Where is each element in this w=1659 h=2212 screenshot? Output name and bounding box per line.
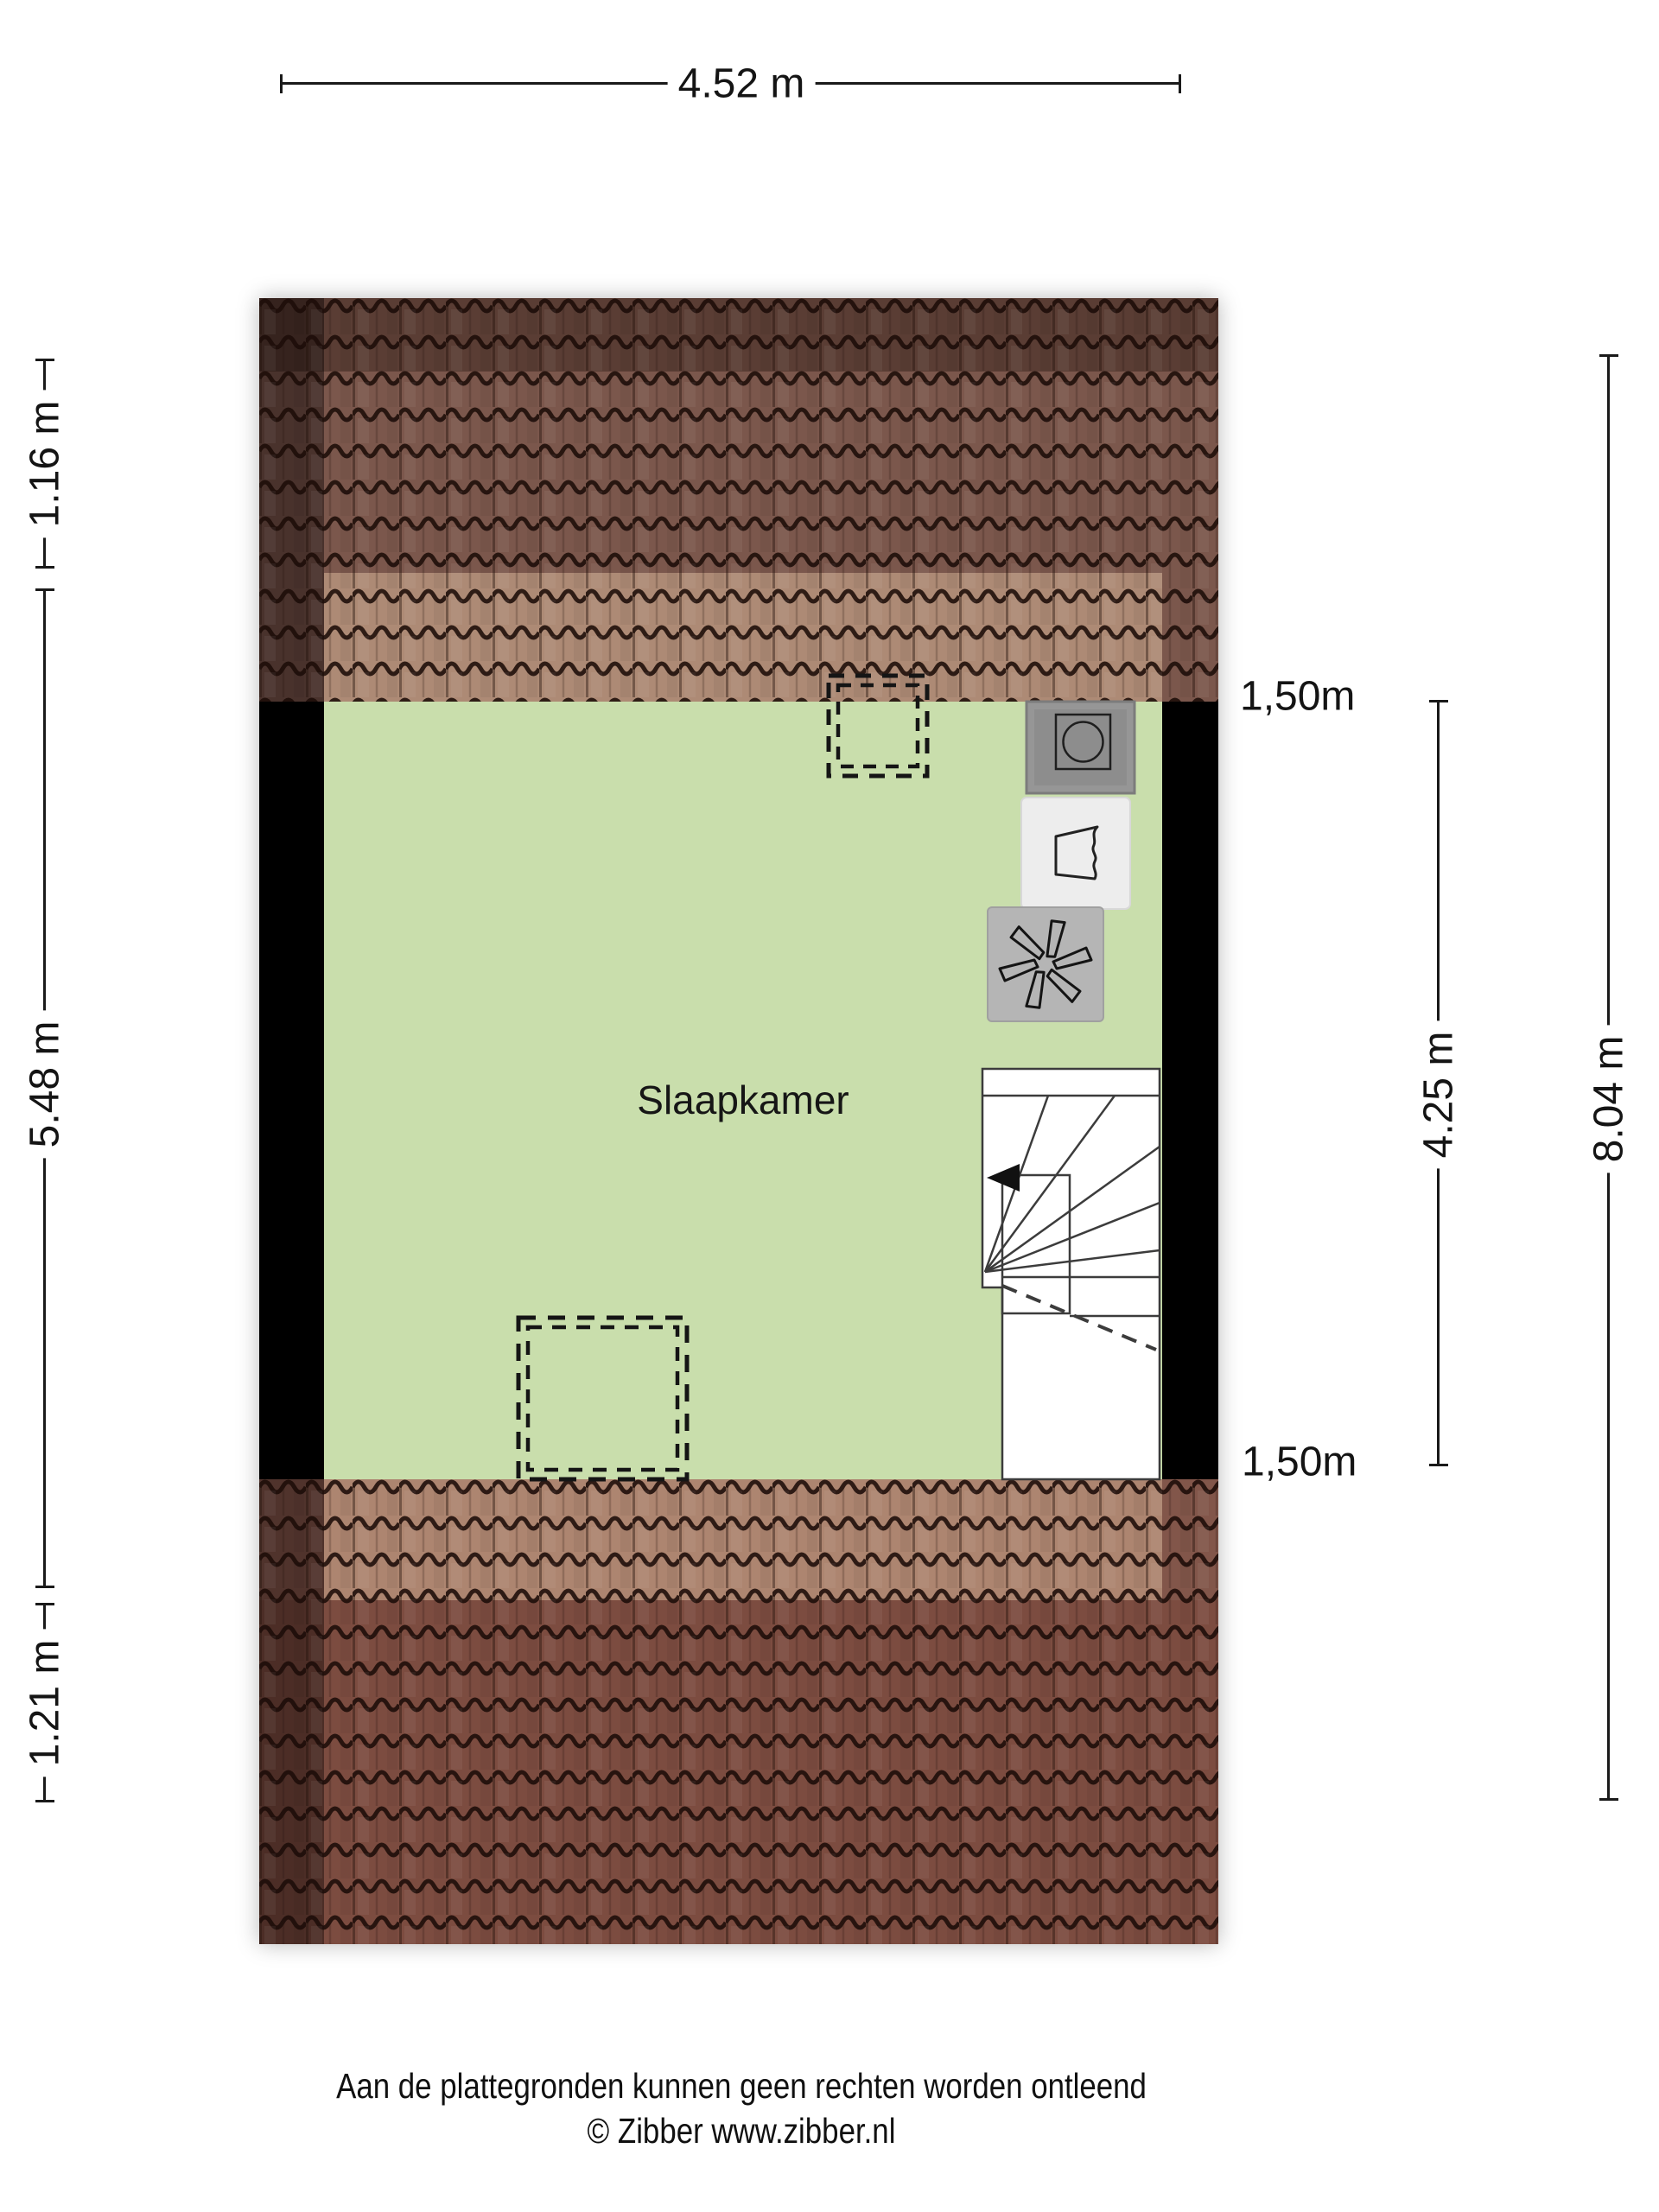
boiler-icon xyxy=(1021,798,1130,909)
dimension-label-inner-height: 4.25 m xyxy=(1414,1021,1465,1169)
mechanical-ventilation-icon xyxy=(988,907,1103,1021)
wall-right xyxy=(1162,702,1218,1479)
floorplan-page: Slaapkamer xyxy=(0,0,1659,2212)
roof-top-band xyxy=(259,298,1218,702)
footer-disclaimer: Aan de plattegronden kunnen geen rechten… xyxy=(336,2063,1147,2108)
knee-wall-label-bottom: 1,50m xyxy=(1242,1439,1357,1486)
knee-wall-label-top: 1,50m xyxy=(1240,673,1355,721)
dimension-label-top-width: 4.52 m xyxy=(668,59,816,110)
floorplan-drawing: Slaapkamer xyxy=(259,298,1218,1944)
stairs xyxy=(982,1069,1160,1479)
washing-machine-icon xyxy=(1027,702,1135,793)
dimension-label-total-height: 8.04 m xyxy=(1584,1026,1635,1173)
footer-copyright: © Zibber www.zibber.nl xyxy=(336,2108,1147,2153)
wall-left xyxy=(259,702,324,1479)
roof-bottom-band xyxy=(259,1479,1218,1944)
dimension-label-left-middle: 5.48 m xyxy=(20,1011,71,1159)
room-label: Slaapkamer xyxy=(637,1077,849,1122)
dimension-label-left-lower: 1.21 m xyxy=(20,1630,71,1777)
floorplan-building: Slaapkamer xyxy=(259,298,1218,1944)
dimension-label-left-upper: 1.16 m xyxy=(20,391,71,538)
footer: Aan de plattegronden kunnen geen rechten… xyxy=(336,2063,1147,2153)
